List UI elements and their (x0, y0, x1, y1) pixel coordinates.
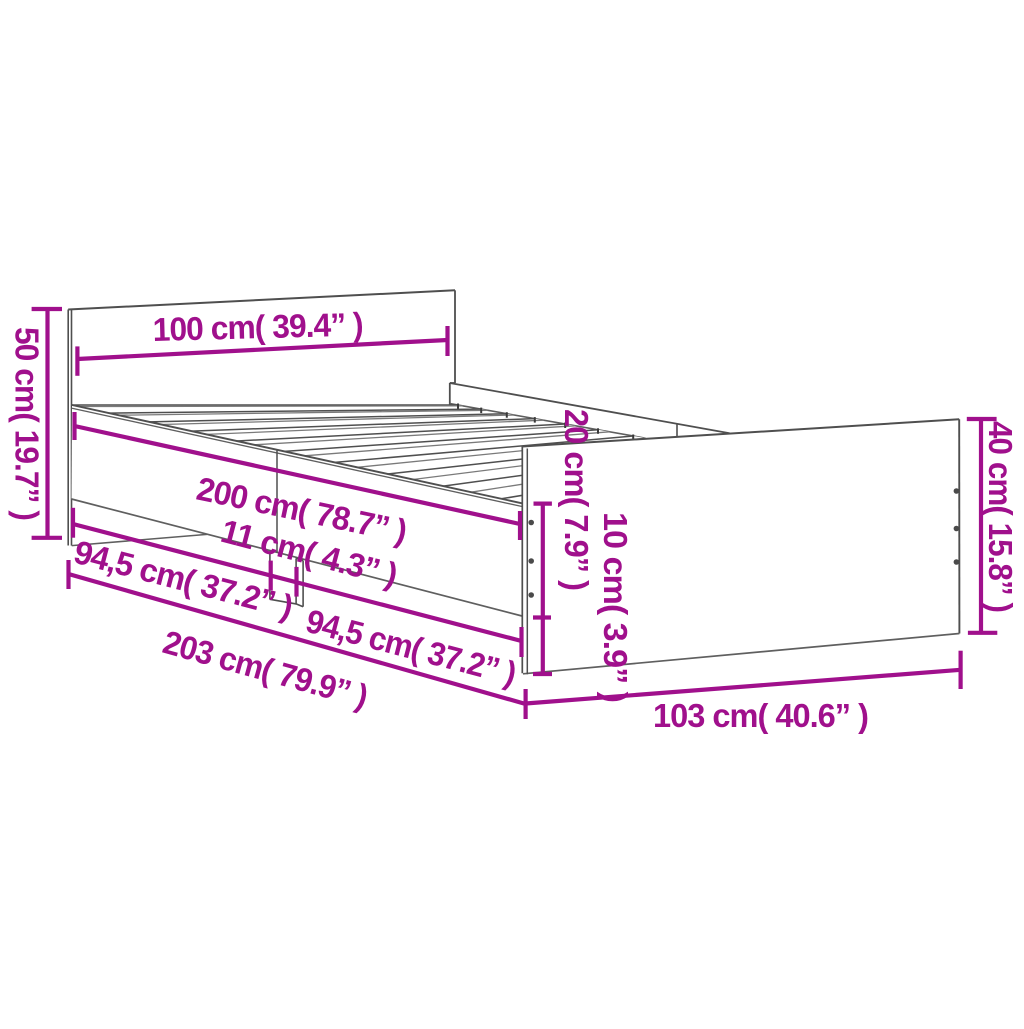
svg-text:20 cm( 7.9” ): 20 cm( 7.9” ) (558, 409, 595, 590)
svg-text:50 cm( 19.7” ): 50 cm( 19.7” ) (9, 327, 46, 520)
svg-text:103 cm( 40.6” ): 103 cm( 40.6” ) (653, 697, 868, 734)
svg-text:40 cm( 15.8” ): 40 cm( 15.8” ) (982, 421, 1019, 612)
svg-text:10 cm( 3.9” ): 10 cm( 3.9” ) (597, 512, 634, 702)
svg-text:100 cm( 39.4” ): 100 cm( 39.4” ) (152, 306, 363, 348)
